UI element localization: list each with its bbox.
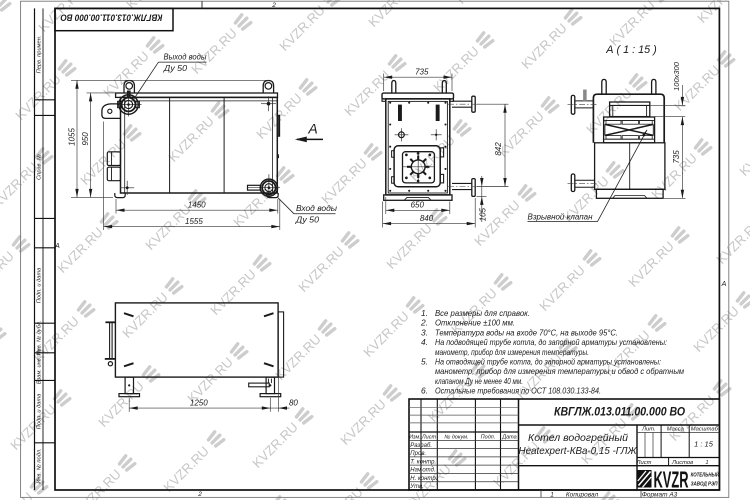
- svg-text:Дата: Дата: [501, 435, 517, 441]
- svg-text:Изм.: Изм.: [409, 435, 421, 441]
- svg-text:Подп.: Подп.: [481, 435, 496, 441]
- svg-text:735: 735: [415, 68, 429, 77]
- svg-text:манометр, прибор для измерения: манометр, прибор для измерения температу…: [435, 366, 684, 376]
- svg-text:Остальные требования по ОСТ 10: Остальные требования по ОСТ 108.030.133-…: [435, 386, 601, 396]
- svg-text:Нач.отд.: Нач.отд.: [410, 468, 435, 474]
- svg-text:А: А: [721, 281, 727, 288]
- svg-text:Отклонение ±100 мм.: Отклонение ±100 мм.: [435, 318, 515, 328]
- svg-text:840: 840: [420, 214, 434, 223]
- svg-text:Н. контр.: Н. контр.: [410, 476, 437, 482]
- svg-text:Разраб.: Разраб.: [410, 443, 432, 449]
- svg-text:4.: 4.: [421, 337, 428, 347]
- svg-text:№ докум.: № докум.: [444, 435, 468, 441]
- svg-text:Температура воды на входе 70°С: Температура воды на входе 70°С, на выход…: [435, 327, 618, 337]
- svg-text:КВГЛЖ.013.011.00.000 ВО: КВГЛЖ.013.011.00.000 ВО: [554, 405, 685, 418]
- svg-text:Т. контр.: Т. контр.: [410, 459, 436, 465]
- svg-text:Ду 50: Ду 50: [295, 214, 319, 224]
- svg-text:80: 80: [289, 399, 298, 408]
- svg-text:Лист: Лист: [421, 435, 437, 441]
- svg-text:KVZR: KVZR: [654, 466, 689, 492]
- svg-text:Выход воды: Выход воды: [164, 52, 207, 62]
- svg-text:Подп. и дата: Подп. и дата: [36, 268, 42, 304]
- svg-text:1055: 1055: [67, 128, 76, 146]
- svg-text:2.: 2.: [420, 318, 428, 328]
- svg-text:5.: 5.: [421, 357, 428, 367]
- svg-text:2: 2: [197, 491, 202, 498]
- svg-text:Подп. и дата: Подп. и дата: [36, 394, 42, 430]
- svg-text:6.: 6.: [421, 386, 428, 396]
- svg-text:На подводящей трубе котла, до: На подводящей трубе котла, до запорной а…: [435, 337, 667, 347]
- svg-text:Формат А3: Формат А3: [642, 491, 678, 498]
- svg-text:100х300: 100х300: [672, 61, 681, 91]
- svg-text:Копировал: Копировал: [566, 491, 599, 498]
- svg-text:На отводящей трубе котла, до з: На отводящей трубе котла, до запорной ар…: [435, 357, 661, 367]
- svg-text:1 : 15: 1 : 15: [694, 440, 714, 449]
- svg-text:Справ. №: Справ. №: [36, 154, 42, 180]
- svg-text:А: А: [54, 243, 60, 250]
- svg-text:1450: 1450: [188, 201, 206, 210]
- svg-text:Пров.: Пров.: [410, 451, 426, 457]
- svg-text:Масштаб: Масштаб: [691, 427, 719, 433]
- svg-text:950: 950: [81, 132, 90, 146]
- svg-text:1250: 1250: [190, 398, 208, 407]
- svg-text:Все размеры для справок.: Все размеры для справок.: [435, 308, 530, 318]
- svg-text:А ( 1 : 15 ): А ( 1 : 15 ): [605, 44, 656, 56]
- svg-text:105: 105: [478, 207, 487, 221]
- svg-text:842: 842: [494, 142, 503, 156]
- svg-text:Перв. примен.: Перв. примен.: [36, 36, 42, 74]
- svg-text:манометр, прибор для измерения: манометр, прибор для измерения температу…: [435, 347, 589, 357]
- svg-text:735: 735: [672, 150, 681, 164]
- svg-text:КВГЛЖ.013.011.00.000 ВО: КВГЛЖ.013.011.00.000 ВО: [60, 12, 163, 22]
- svg-text:клапаном Ду не менее 40 мм.: клапаном Ду не менее 40 мм.: [435, 376, 523, 386]
- svg-text:Утв.: Утв.: [409, 484, 424, 490]
- svg-text:Лит.: Лит.: [641, 427, 656, 433]
- svg-text:Ду 50: Ду 50: [163, 63, 187, 73]
- svg-text:2: 2: [271, 2, 276, 9]
- svg-text:Heatexpert-КВа-0,15 -ГЛЖ: Heatexpert-КВа-0,15 -ГЛЖ: [519, 446, 638, 457]
- svg-text:Взрывной клапан: Взрывной клапан: [528, 211, 593, 221]
- svg-text:КОТЕЛЬНЫЙ: КОТЕЛЬНЫЙ: [691, 471, 720, 479]
- svg-text:Котел водогрейный: Котел водогрейный: [528, 433, 628, 444]
- svg-text:650: 650: [411, 201, 425, 210]
- svg-text:Вход воды: Вход воды: [296, 203, 337, 213]
- svg-text:Масса: Масса: [667, 427, 685, 433]
- svg-text:Инв. № подл.: Инв. № подл.: [36, 448, 42, 483]
- svg-text:3.: 3.: [421, 327, 428, 337]
- svg-text:Взам. инв. №: Взам. инв. №: [36, 349, 42, 384]
- svg-text:А: А: [307, 121, 317, 137]
- svg-text:1555: 1555: [185, 217, 203, 226]
- svg-text:ЗАВОД РЭП: ЗАВОД РЭП: [691, 482, 719, 488]
- svg-text:1: 1: [550, 491, 554, 498]
- svg-text:1.: 1.: [421, 308, 428, 318]
